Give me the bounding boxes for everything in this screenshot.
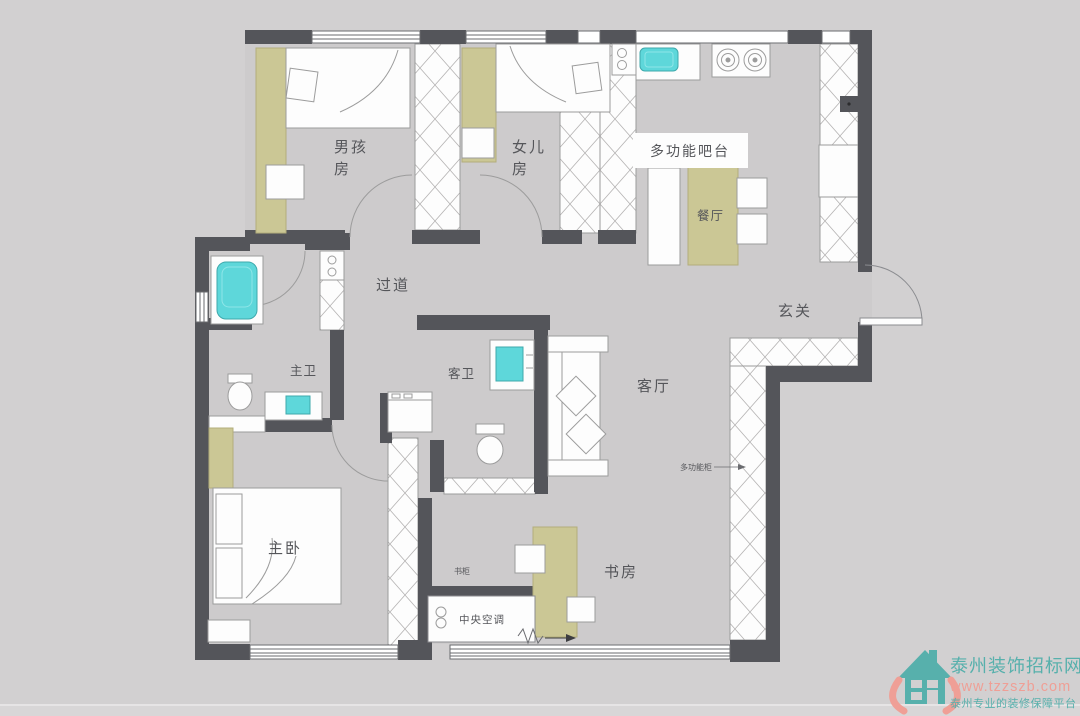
sofa-arm bbox=[548, 336, 608, 352]
central-ac-label: 中央空调 bbox=[459, 613, 505, 626]
daughters-nightstand bbox=[462, 128, 494, 158]
boys-pillow bbox=[286, 68, 318, 102]
kitchen bbox=[612, 44, 770, 80]
dining-label: 餐厅 bbox=[697, 208, 724, 223]
bookcase-label: 书柜 bbox=[454, 566, 470, 576]
headboard-cabinet bbox=[209, 428, 233, 488]
hand-left bbox=[893, 680, 904, 711]
guest-toilet bbox=[477, 436, 503, 464]
bar-label: 多功能吧台 bbox=[650, 143, 730, 159]
master-toilet bbox=[228, 382, 252, 410]
boys-wardrobe-strip bbox=[256, 48, 286, 233]
boys-room-label: 男孩 bbox=[334, 139, 368, 156]
window-daughters-room bbox=[466, 31, 546, 43]
boys-desk bbox=[266, 165, 304, 199]
pillow bbox=[216, 548, 242, 598]
window-study-bottom bbox=[450, 645, 730, 659]
study-label: 书房 bbox=[604, 564, 638, 581]
daughters-pillow bbox=[572, 62, 602, 93]
floorplan-drawing: 男孩 房 女儿 房 过道 主卫 客卫 客厅 主卧 书房 餐厅 玄关 多功能吧台 … bbox=[0, 0, 1080, 716]
entry-doorway-floor bbox=[858, 272, 872, 322]
bookcase-column bbox=[388, 438, 418, 645]
fridge bbox=[819, 145, 858, 197]
wardrobe-daughter bbox=[560, 95, 600, 233]
kitchen-sink bbox=[640, 48, 678, 71]
living-room-label: 客厅 bbox=[637, 378, 671, 395]
bath-tall-cabinet bbox=[320, 251, 344, 330]
watermark-logo bbox=[893, 650, 958, 711]
floorplan-page: 男孩 房 女儿 房 过道 主卫 客卫 客厅 主卧 书房 餐厅 玄关 多功能吧台 … bbox=[0, 0, 1080, 716]
master-bath-label: 主卫 bbox=[290, 364, 317, 378]
bar-counter bbox=[648, 168, 680, 265]
watermark-tagline: 泰州专业的装修保障平台 bbox=[950, 696, 1077, 710]
entry-label: 玄关 bbox=[778, 303, 812, 320]
sofa-back bbox=[548, 336, 562, 476]
dining-chair bbox=[737, 214, 767, 244]
wardrobe-between-kids-rooms bbox=[415, 44, 460, 230]
window-boys-room bbox=[312, 31, 420, 43]
watermark: 泰州装饰招标网 www.tzzszb.com 泰州专业的装修保障平台 bbox=[0, 650, 1080, 716]
sofa-arm bbox=[548, 460, 608, 476]
watermark-site-name: 泰州装饰招标网 bbox=[950, 656, 1080, 676]
guest-bath-label: 客卫 bbox=[448, 366, 475, 381]
guest-sink bbox=[496, 347, 523, 381]
dining-chair bbox=[737, 178, 767, 208]
nightstand bbox=[208, 620, 250, 642]
study-chair bbox=[515, 545, 545, 573]
boys-room-label2: 房 bbox=[334, 161, 351, 178]
living-room bbox=[548, 336, 608, 476]
study-chair bbox=[567, 597, 595, 622]
multi-cabinet-label: 多功能柜 bbox=[680, 462, 712, 472]
entry-shoe-cabinet bbox=[730, 338, 858, 640]
window-master-bath-left bbox=[196, 292, 208, 322]
pillow bbox=[216, 494, 242, 544]
master-bedroom-label: 主卧 bbox=[268, 540, 302, 557]
vanity-sink bbox=[286, 396, 310, 414]
daughters-room-label2: 房 bbox=[512, 161, 529, 178]
hallway-label: 过道 bbox=[376, 277, 410, 294]
bottom-band bbox=[0, 706, 1080, 716]
cabinet-kitchen-right bbox=[819, 44, 858, 262]
daughters-room-label: 女儿 bbox=[512, 138, 546, 156]
bottom-divider bbox=[0, 704, 1080, 706]
guest-toilet-tank bbox=[476, 424, 504, 434]
watermark-site-url: www.tzzszb.com bbox=[949, 679, 1071, 695]
window-master-bedroom-bottom bbox=[250, 645, 398, 659]
